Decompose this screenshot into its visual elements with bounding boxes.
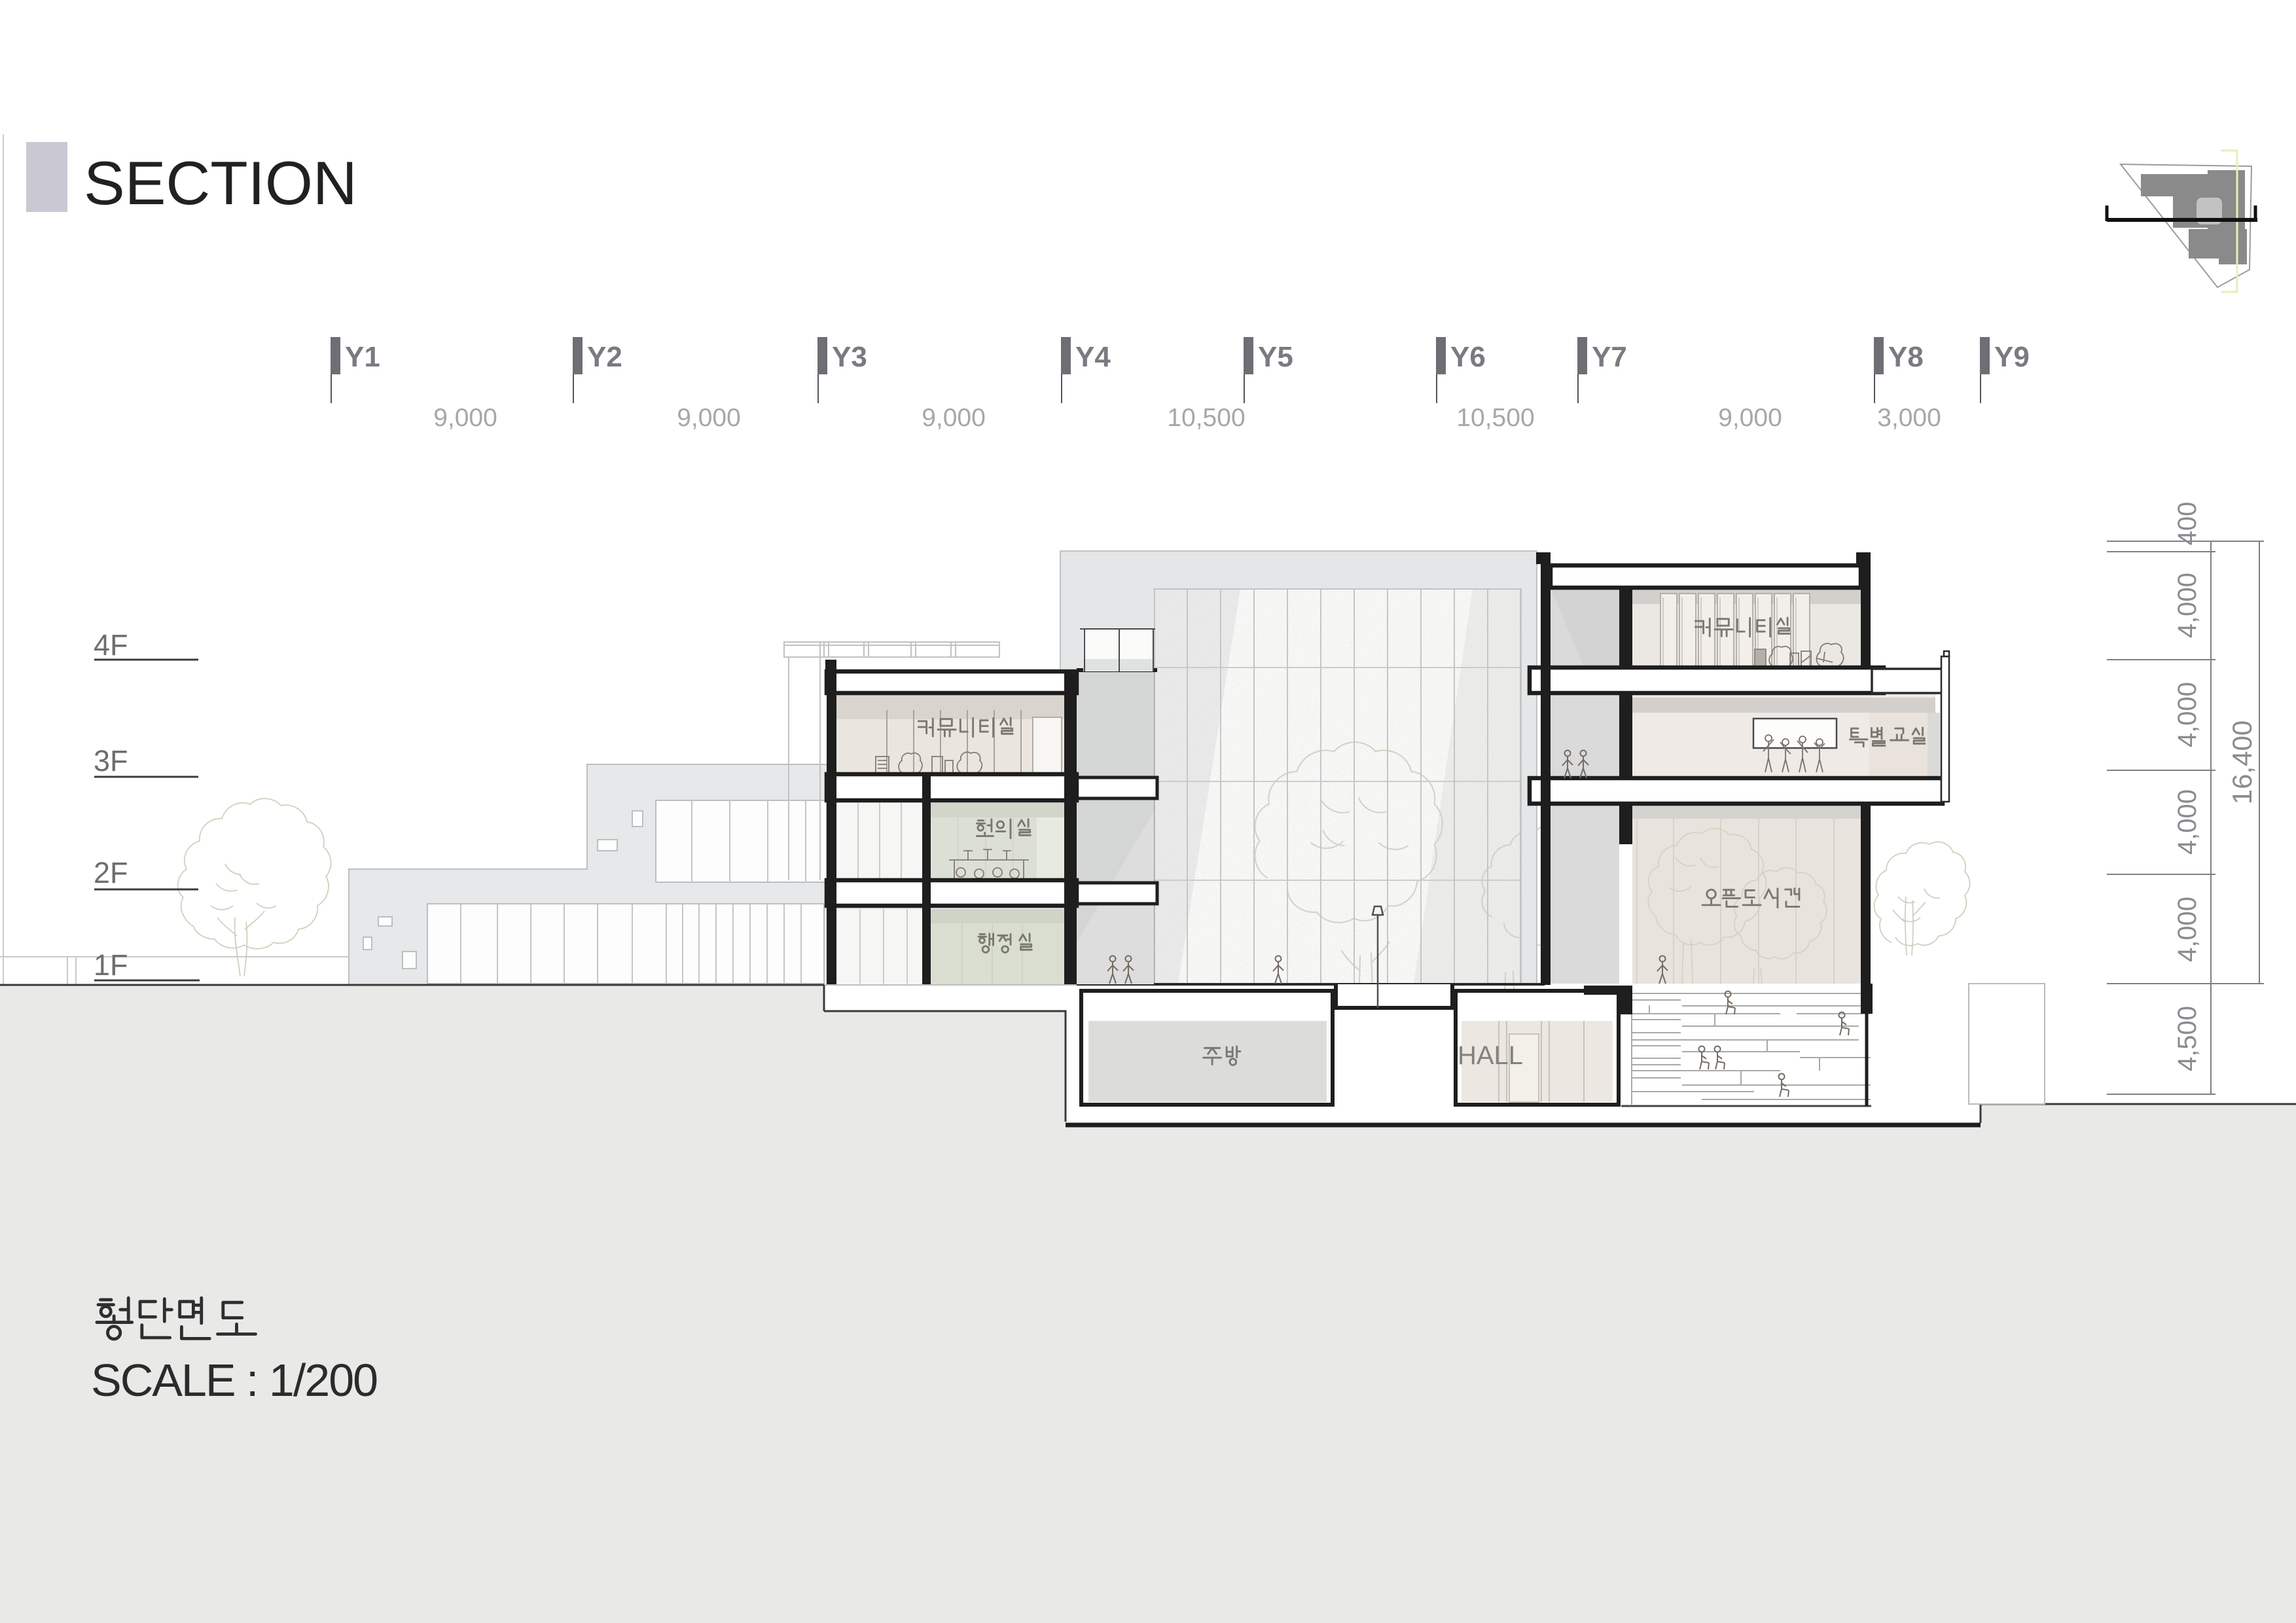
svg-text:9,000: 9,000	[1718, 404, 1782, 432]
svg-text:Y9: Y9	[1994, 341, 2030, 373]
svg-text:4,000: 4,000	[2173, 682, 2202, 747]
svg-text:4,000: 4,000	[2173, 573, 2202, 638]
svg-text:400: 400	[2173, 502, 2202, 546]
svg-text:9,000: 9,000	[433, 404, 497, 432]
svg-text:10,500: 10,500	[1456, 404, 1534, 432]
svg-text:HALL: HALL	[1458, 1041, 1523, 1070]
svg-text:16,400: 16,400	[2227, 721, 2257, 804]
svg-text:Y2: Y2	[587, 341, 622, 373]
svg-text:3F: 3F	[94, 744, 128, 777]
svg-text:Y4: Y4	[1075, 341, 1111, 373]
svg-text:10,500: 10,500	[1167, 404, 1245, 432]
svg-text:SECTION: SECTION	[84, 149, 357, 217]
svg-text:Y7: Y7	[1592, 341, 1627, 373]
svg-text:Y6: Y6	[1450, 341, 1486, 373]
svg-text:9,000: 9,000	[677, 404, 741, 432]
svg-text:4,000: 4,000	[2173, 897, 2202, 962]
svg-text:1F: 1F	[94, 948, 128, 982]
svg-text:Y5: Y5	[1258, 341, 1293, 373]
svg-text:4,000: 4,000	[2173, 789, 2202, 855]
svg-text:2F: 2F	[94, 856, 128, 889]
svg-text:SCALE : 1/200: SCALE : 1/200	[91, 1355, 377, 1406]
svg-text:Y8: Y8	[1888, 341, 1924, 373]
svg-text:9,000: 9,000	[922, 404, 986, 432]
svg-text:Y3: Y3	[832, 341, 867, 373]
svg-text:4,500: 4,500	[2173, 1006, 2202, 1071]
svg-text:4F: 4F	[94, 628, 128, 662]
svg-text:3,000: 3,000	[1877, 404, 1941, 432]
svg-text:Y1: Y1	[345, 341, 380, 373]
